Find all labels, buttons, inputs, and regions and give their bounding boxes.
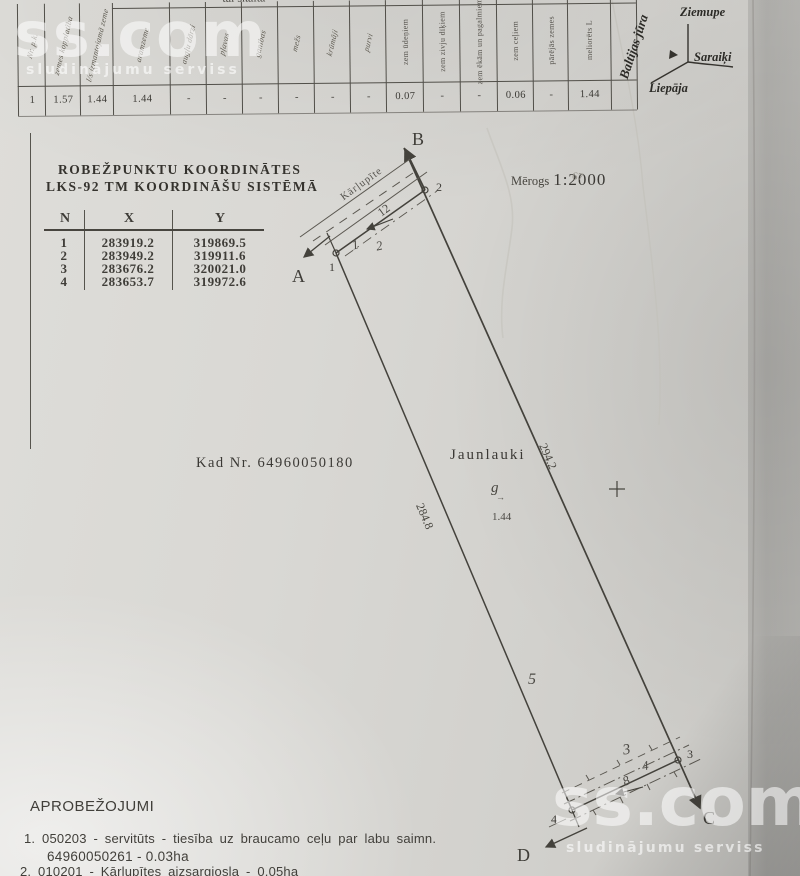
coords-header-n: N — [50, 211, 80, 227]
parcel-name-label: Jaunlauki — [450, 447, 526, 464]
plan-linework — [0, 0, 800, 876]
col-header: zem ceļiem — [511, 21, 520, 61]
table-col-14: zem ceļiem0.06 — [496, 0, 534, 111]
grid-cross — [609, 481, 625, 497]
table-col-3: l/s izmantojamā zeme1.44 — [79, 3, 114, 115]
landuse-arrow-icon: → — [496, 492, 505, 502]
sketch-arrow-icon — [669, 50, 678, 59]
direction-label-D: D — [517, 845, 530, 866]
direction-label-A: A — [292, 266, 305, 287]
col-value: - — [424, 90, 461, 101]
vertex-label-2: 2 — [436, 180, 442, 195]
col-value: - — [279, 92, 315, 103]
col-header: l/s izmantojamā zeme — [84, 7, 110, 83]
col-value: - — [171, 93, 207, 104]
col-value: 0.07 — [387, 91, 424, 102]
table-col-4: aramzeme1.44 — [112, 2, 171, 115]
col-header: meliorēts L — [585, 20, 594, 60]
scale-block: Mērogs 1:2000 — [511, 170, 606, 190]
sketch-town-east: Saraiķi — [694, 50, 732, 65]
col-header: purvi — [362, 32, 375, 54]
col-value: 1.44 — [81, 94, 114, 105]
col-header: augļu dārzi — [179, 23, 197, 66]
point-number: 4 — [44, 274, 84, 290]
direction-label-B: B — [412, 129, 424, 150]
col-value: - — [315, 92, 351, 103]
scale-label: Mērogs — [511, 174, 549, 188]
col-value: 0.06 — [498, 90, 534, 101]
table-col-1: Nr. p.k.1 — [17, 4, 46, 116]
sketch-town-north: Ziemupe — [680, 5, 725, 20]
landuse-area-label: 1.44 — [492, 511, 511, 523]
stream-width-arrow — [367, 219, 393, 229]
col-value: 1.44 — [114, 93, 171, 105]
table-col-10: purvi- — [349, 0, 387, 112]
table-col-11: zem ūdeņiem0.07 — [385, 0, 424, 112]
restriction-item-1b: 64960050261 - 0.03ha — [47, 849, 189, 864]
col-header: mežs — [290, 33, 302, 53]
pencil-note: 67 — [571, 170, 584, 184]
land-use-table: tai skaitā Nr. p.k.1 zemes kopplatība1.5… — [0, 0, 660, 125]
x-value: 283653.7 — [84, 274, 172, 290]
col-header: aramzeme — [134, 26, 151, 64]
col-header: pļavas — [217, 31, 231, 57]
col-header: ganības — [253, 28, 268, 58]
coords-title-line2: LKS-92 TM KOORDINĀŠU SISTĒMĀ — [46, 179, 318, 195]
vertex-label-1: 1 — [329, 260, 335, 275]
table-col-13: zem ēkām un pagalmiem- — [459, 0, 498, 111]
table-col-5: augļu dārzi- — [169, 2, 207, 114]
restriction-item-1: 1. 050203 - servitūts - tiesība uz brauc… — [24, 831, 436, 846]
col-value: - — [351, 91, 387, 102]
col-header: zemes kopplatība — [52, 14, 74, 76]
col-header: zem ūdeņiem — [400, 19, 409, 65]
vertex-label-3: 3 — [687, 747, 693, 762]
col-value: - — [243, 92, 279, 103]
boundary-line-left — [336, 253, 572, 810]
paper-creases — [487, 0, 755, 876]
col-header: krūmāji — [325, 28, 340, 58]
segment-label-5: 5 — [528, 671, 536, 689]
table-col-6: pļavas- — [205, 2, 243, 114]
coords-header-y: Y — [174, 211, 266, 227]
y-value: 319972.6 — [172, 274, 268, 290]
direction-arrow-A — [304, 236, 330, 257]
scanned-land-plan-document: tai skaitā Nr. p.k.1 zemes kopplatība1.5… — [0, 0, 800, 876]
table-col-9: krūmāji- — [313, 1, 351, 113]
coords-header-x: X — [86, 211, 172, 227]
col-value: 1 — [19, 95, 46, 106]
col-value: 1.44 — [569, 89, 611, 100]
table-col-8: mežs- — [277, 1, 315, 113]
restriction-item-2: 2. 010201 - Kārļupītes aizsargjosla - 0.… — [20, 864, 298, 876]
col-header: zem ēkām un pagalmiem — [474, 0, 484, 84]
table-col-16: meliorēts L1.44 — [567, 0, 612, 110]
table-col-15: pārējās zemes- — [532, 0, 569, 111]
col-value: 1.57 — [46, 94, 81, 105]
col-value: - — [534, 89, 569, 100]
col-header: zem zivju dīķiem — [437, 11, 447, 71]
direction-label-C: C — [703, 808, 715, 829]
col-value: - — [461, 90, 498, 101]
boundary-arrow-B — [405, 149, 425, 190]
col-header: Nr. p.k. — [25, 32, 39, 60]
cadastre-number: Kad Nr. 64960050180 — [196, 455, 354, 472]
boundary-line-right-BC — [404, 148, 700, 808]
direction-arrow-D — [546, 828, 587, 847]
table-col-12: zem zivju dīķiem- — [422, 0, 461, 112]
vertex-label-4: 4 — [551, 812, 557, 827]
sketch-town-south: Liepāja — [649, 81, 688, 96]
restrictions-title: APROBEŽOJUMI — [30, 798, 154, 815]
coords-row: 4283653.7319972.6 — [44, 274, 268, 290]
table-col-2: zemes kopplatība1.57 — [44, 3, 81, 115]
coords-title-line1: ROBEŽPUNKTU KOORDINĀTES — [58, 162, 301, 178]
col-header: pārējās zemes — [546, 16, 556, 65]
col-value: - — [207, 93, 243, 104]
table-col-7: ganības- — [241, 1, 279, 113]
